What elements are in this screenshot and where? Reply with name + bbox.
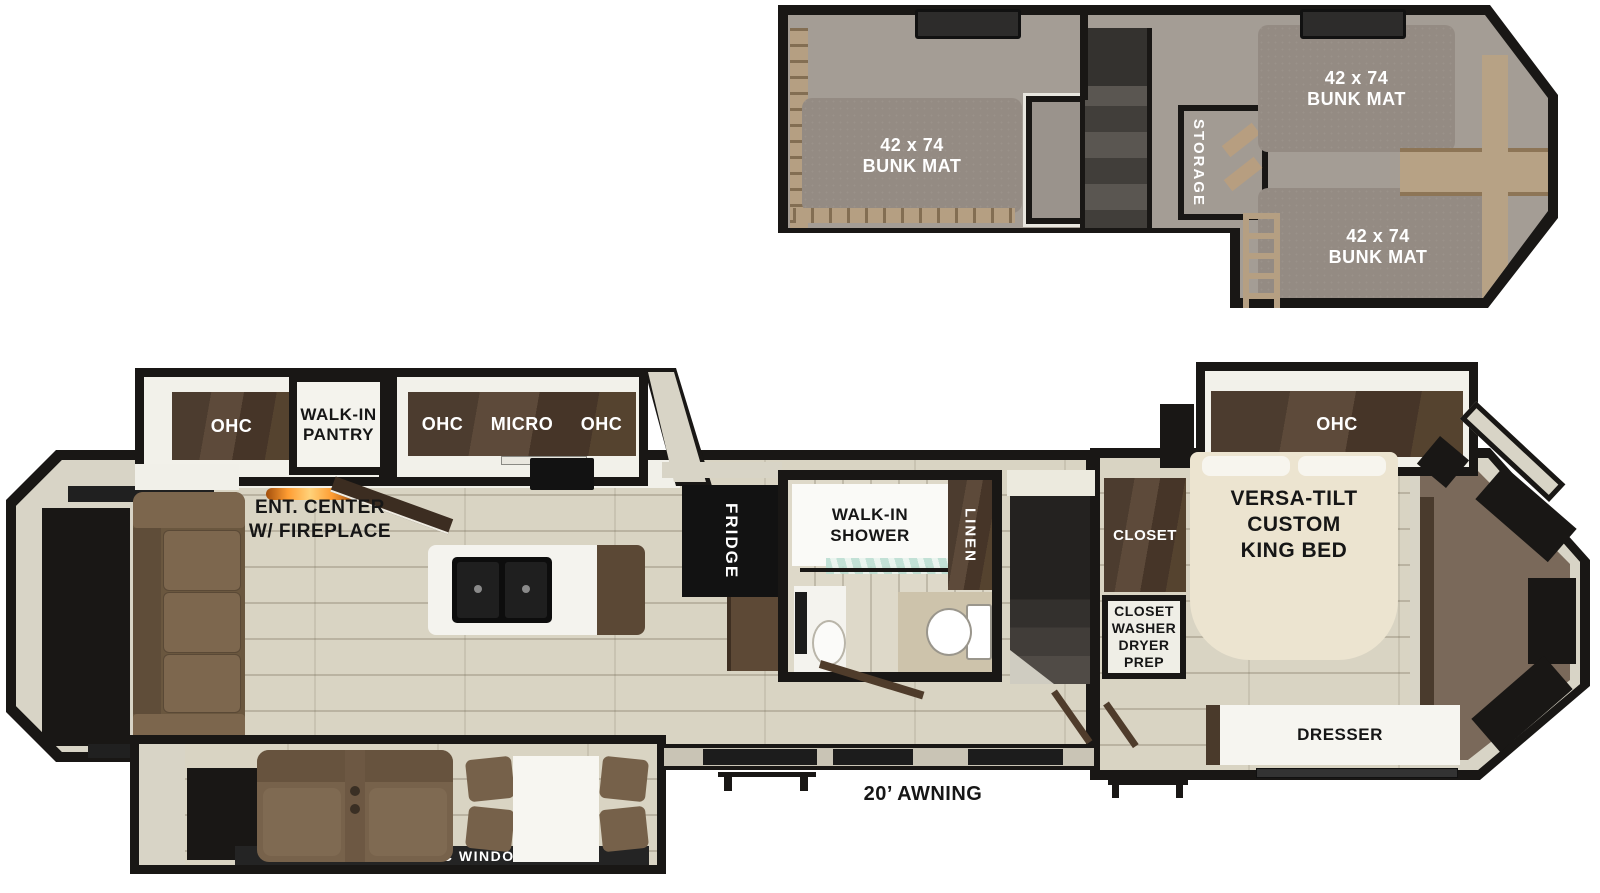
step-leg	[800, 777, 808, 791]
shower-label-line2: SHOWER	[830, 525, 910, 546]
storage-room: STORAGE	[1178, 105, 1268, 220]
cooktop	[530, 458, 594, 490]
wd-label-line1: CLOSET	[1114, 603, 1174, 620]
bunk-mat-top-right-size: 42 x 74	[1325, 68, 1389, 89]
island-cabinet-end	[597, 545, 645, 635]
sofa-armrest	[133, 492, 245, 528]
theater-seat-cushion	[369, 788, 447, 856]
bunk-mat-bottom-right: 42 x 74 BUNK MAT	[1258, 188, 1498, 305]
theater-seating	[257, 750, 453, 862]
loft-room-divider-wall	[1080, 15, 1088, 100]
step-leg	[1112, 785, 1119, 798]
bunk-mat-left: 42 x 74 BUNK MAT	[802, 98, 1022, 213]
wd-label-line4: PREP	[1124, 654, 1164, 671]
awning-label: 20’ AWNING	[823, 783, 1023, 806]
bedroom-window-left	[1160, 404, 1194, 468]
fridge-label: FRIDGE	[721, 503, 741, 579]
skylight	[1300, 9, 1406, 39]
dinette-chair	[465, 756, 515, 803]
loft-floor: 42 x 74 BUNK MAT STORAGE 42 x 74 BUNK MA…	[788, 15, 1548, 298]
carpet-edge-shadow	[1420, 497, 1434, 727]
bathroom: WALK-IN SHOWER LINEN	[778, 470, 1002, 682]
sofa-back	[133, 528, 161, 714]
pantry-label-line2: PANTRY	[303, 425, 374, 445]
vanity-sink	[812, 620, 846, 666]
main-stairs	[1010, 496, 1090, 684]
dresser-window-strip	[1256, 768, 1458, 778]
loft-ladder	[1243, 213, 1280, 308]
kitchen-island	[428, 545, 645, 635]
dresser-side-cabinet	[1206, 705, 1220, 765]
bed-label-line1: VERSA-TILT	[1230, 486, 1357, 512]
ent-center-line1: ENT. CENTER	[255, 496, 385, 520]
loft-wood-divider	[1400, 148, 1548, 196]
ohc-rear-label: OHC	[211, 416, 253, 437]
awning-wall-window	[968, 749, 1063, 765]
kitchen-ohc-left-label: OHC	[422, 414, 464, 435]
bedroom-ohc-label: OHC	[1316, 414, 1358, 435]
sofa-cushion	[163, 530, 241, 591]
skylight	[915, 9, 1021, 39]
dresser: DRESSER	[1220, 705, 1460, 765]
sofa-cushion	[163, 654, 241, 713]
rear-window	[42, 508, 130, 746]
bunk-mat-left-label: BUNK MAT	[863, 156, 962, 177]
wd-label-line3: DRYER	[1119, 637, 1170, 654]
sink-drain	[522, 585, 530, 593]
bed-label-line2: CUSTOM	[1247, 512, 1341, 538]
closet-label: CLOSET	[1113, 527, 1177, 544]
loft-stairs-landing	[1085, 28, 1147, 86]
slide-wall-trim	[139, 744, 185, 865]
loft-bunk-edge-slats	[793, 208, 1015, 223]
wd-label-line2: WASHER	[1112, 620, 1176, 637]
fridge-cabinet	[727, 597, 779, 671]
washer-dryer-prep-closet: CLOSET WASHER DRYER PREP	[1102, 595, 1186, 679]
walk-in-pantry: WALK-IN PANTRY	[289, 374, 388, 475]
king-bed: VERSA-TILT CUSTOM KING BED	[1190, 452, 1398, 660]
ent-center-label: ENT. CENTER W/ FIREPLACE	[220, 496, 420, 544]
micro-label: MICRO	[491, 414, 554, 435]
pantry-label-line1: WALK-IN	[300, 405, 376, 425]
sofa-cushion	[163, 592, 241, 653]
ohc-cabinet-bedroom: OHC	[1211, 391, 1463, 457]
dinette-chair	[599, 806, 649, 853]
kitchen-slideout: OHC MICRO OHC	[388, 368, 648, 486]
stair-landing	[1007, 470, 1095, 496]
floorplan-canvas: 42 x 74 BUNK MAT STORAGE 42 x 74 BUNK MA…	[0, 0, 1600, 893]
theater-seat-cushion	[263, 788, 341, 856]
awning-wall-window	[833, 749, 913, 765]
awning-wall-window	[703, 749, 817, 765]
bunk-mat-bottom-right-label: BUNK MAT	[1329, 247, 1428, 268]
loft-front-wood-panel	[1482, 55, 1508, 305]
sofa	[133, 492, 245, 750]
dinette-chair	[599, 756, 649, 803]
kitchen-upper-cabinets: OHC MICRO OHC	[408, 392, 636, 456]
dinette-table	[513, 756, 599, 862]
sink-drain	[474, 585, 482, 593]
bunk-mat-top-right-label: BUNK MAT	[1307, 89, 1406, 110]
front-cap-window-middle	[1528, 578, 1576, 664]
shower-door-track	[800, 568, 950, 572]
loft-stairs	[1080, 28, 1152, 233]
entry-wall-trim	[662, 462, 782, 478]
step-leg	[1176, 785, 1183, 798]
island-double-sink	[452, 557, 552, 623]
storage-shelf	[1224, 157, 1263, 191]
fridge: FRIDGE	[682, 485, 780, 597]
bottom-slideout: PANORAMIC WINDOW	[130, 735, 666, 874]
bed-pillow	[1298, 456, 1386, 476]
bunk-mat-bottom-right-size: 42 x 74	[1346, 226, 1410, 247]
ent-center-line2: W/ FIREPLACE	[249, 520, 391, 544]
awning-text: 20’ AWNING	[864, 783, 983, 806]
storage-label: STORAGE	[1190, 119, 1207, 207]
dinette-chair	[465, 806, 515, 853]
kitchen-ohc-right-label: OHC	[581, 414, 623, 435]
dresser-label: DRESSER	[1297, 725, 1383, 745]
bedroom-closet: CLOSET	[1104, 478, 1186, 592]
bed-label-line3: KING BED	[1241, 538, 1348, 564]
bunk-mat-left-size: 42 x 74	[880, 135, 944, 156]
cupholder	[350, 786, 360, 796]
bed-label: VERSA-TILT CUSTOM KING BED	[1190, 486, 1398, 564]
sofa-end-table	[135, 464, 239, 490]
walk-in-shower: WALK-IN SHOWER	[792, 484, 948, 566]
step-leg	[724, 777, 732, 791]
linen-cabinet: LINEN	[948, 480, 992, 590]
shower-label-line1: WALK-IN	[832, 504, 908, 525]
vanity-mirror	[795, 592, 807, 654]
ohc-cabinet-rear: OHC	[172, 392, 291, 460]
linen-label: LINEN	[962, 508, 979, 563]
bed-pillow	[1202, 456, 1290, 476]
toilet-bowl	[926, 608, 972, 656]
cupholder	[350, 804, 360, 814]
storage-shelf	[1222, 123, 1261, 157]
bunk-mat-top-right: 42 x 74 BUNK MAT	[1258, 25, 1455, 152]
